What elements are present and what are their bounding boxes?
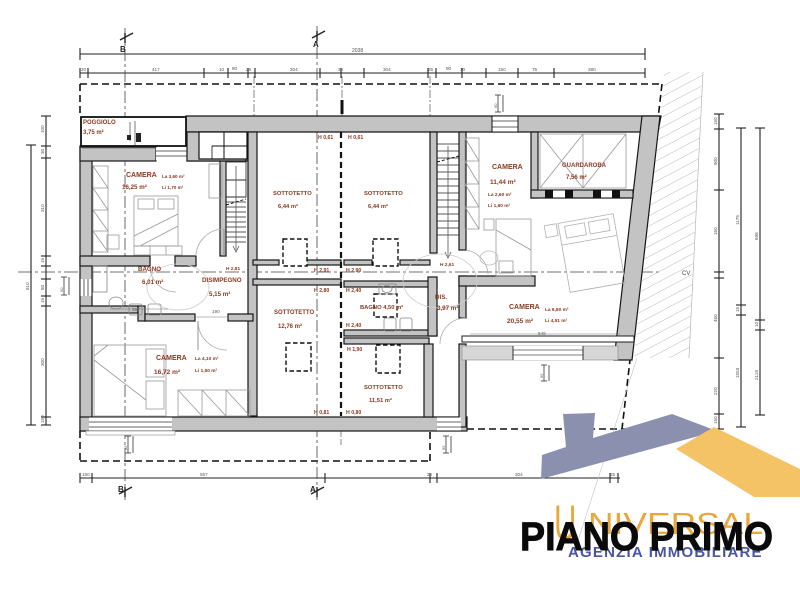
svg-text:549: 549 — [538, 331, 546, 336]
svg-text:H 2,40: H 2,40 — [346, 288, 361, 294]
svg-text:150: 150 — [498, 67, 506, 72]
svg-text:25: 25 — [610, 472, 616, 477]
svg-text:300: 300 — [40, 358, 45, 366]
svg-text:Li 4,51 m²: Li 4,51 m² — [545, 318, 568, 324]
svg-text:SOTTOTETTO: SOTTOTETTO — [274, 310, 314, 316]
svg-text:1553: 1553 — [735, 367, 740, 378]
svg-text:La 6,80 m²: La 6,80 m² — [545, 307, 569, 313]
svg-text:304: 304 — [290, 67, 298, 72]
svg-text:H 2,81: H 2,81 — [226, 266, 240, 272]
svg-text:95: 95 — [123, 445, 128, 450]
svg-text:90: 90 — [59, 287, 64, 292]
svg-text:H 2,40: H 2,40 — [346, 323, 361, 329]
svg-text:10: 10 — [219, 67, 225, 72]
svg-text:25: 25 — [427, 472, 433, 477]
svg-text:SOTTOTETTO: SOTTOTETTO — [364, 191, 403, 197]
svg-text:357: 357 — [132, 307, 140, 312]
svg-text:220: 220 — [713, 387, 718, 395]
svg-text:11,44 m²: 11,44 m² — [490, 179, 516, 186]
svg-text:6,44 m²: 6,44 m² — [368, 203, 388, 210]
svg-text:B: B — [120, 45, 126, 54]
svg-text:H 2,80: H 2,80 — [314, 288, 329, 294]
svg-text:La 4,10 m²: La 4,10 m² — [195, 356, 219, 362]
svg-text:417: 417 — [152, 67, 160, 72]
svg-text:CAMERA: CAMERA — [126, 172, 157, 179]
svg-text:7,56 m²: 7,56 m² — [566, 174, 587, 181]
svg-text:6,44 m²: 6,44 m² — [278, 203, 298, 210]
svg-text:DISIMPEGNO: DISIMPEGNO — [202, 277, 242, 284]
svg-text:H 2,61: H 2,61 — [440, 262, 454, 268]
svg-text:90: 90 — [493, 103, 498, 108]
svg-text:A: A — [310, 485, 316, 494]
svg-text:10: 10 — [754, 321, 759, 327]
svg-text:150: 150 — [713, 227, 718, 235]
svg-text:H 0,61: H 0,61 — [348, 135, 363, 141]
svg-text:190: 190 — [212, 309, 220, 314]
svg-text:BAGNO: BAGNO — [138, 266, 161, 273]
svg-text:15: 15 — [40, 257, 45, 263]
svg-text:BAGNO 4,50 m²: BAGNO 4,50 m² — [360, 304, 403, 311]
svg-text:95: 95 — [441, 445, 446, 450]
svg-text:5,15 m²: 5,15 m² — [209, 291, 230, 298]
svg-text:H 0,61: H 0,61 — [318, 135, 333, 141]
svg-text:SOTTOTETTO: SOTTOTETTO — [273, 191, 312, 197]
svg-text:25: 25 — [338, 67, 344, 72]
svg-text:10: 10 — [460, 67, 466, 72]
svg-text:900: 900 — [713, 157, 718, 165]
svg-text:80: 80 — [232, 66, 238, 71]
svg-text:La 2,60 m²: La 2,60 m² — [488, 192, 512, 198]
svg-text:95: 95 — [539, 373, 544, 378]
svg-text:CAMERA: CAMERA — [156, 355, 187, 362]
svg-text:2038: 2038 — [352, 48, 363, 54]
svg-text:16,25 m²: 16,25 m² — [122, 184, 147, 191]
svg-text:380: 380 — [588, 67, 596, 72]
svg-text:H 0,80: H 0,80 — [346, 410, 361, 416]
svg-text:15: 15 — [735, 306, 740, 312]
svg-text:H 1,90: H 1,90 — [347, 347, 362, 353]
svg-text:150: 150 — [713, 416, 718, 424]
svg-text:460: 460 — [713, 314, 718, 322]
svg-text:150: 150 — [40, 415, 45, 423]
svg-text:Li 1,60 m²: Li 1,60 m² — [488, 203, 511, 209]
svg-text:557: 557 — [200, 472, 208, 477]
svg-text:20: 20 — [81, 67, 87, 72]
svg-text:150: 150 — [82, 472, 90, 477]
svg-text:150: 150 — [713, 117, 718, 125]
svg-text:CAMERA: CAMERA — [492, 164, 523, 171]
svg-text:16,72 m²: 16,72 m² — [154, 369, 181, 376]
svg-text:698: 698 — [754, 232, 759, 240]
svg-text:1175: 1175 — [735, 215, 740, 225]
svg-text:H 2,90: H 2,90 — [346, 268, 361, 274]
svg-text:310: 310 — [40, 204, 45, 212]
svg-text:H 0,81: H 0,81 — [314, 410, 329, 416]
svg-text:304: 304 — [383, 67, 391, 72]
svg-text:A: A — [313, 40, 319, 49]
svg-text:15: 15 — [40, 297, 45, 303]
svg-text:Li 1,50 m²: Li 1,50 m² — [195, 368, 218, 374]
svg-text:304: 304 — [515, 472, 523, 477]
svg-text:GUARDAROBA: GUARDAROBA — [562, 163, 607, 169]
svg-text:80: 80 — [40, 284, 45, 290]
svg-text:SOTTOTETTO: SOTTOTETTO — [364, 385, 403, 391]
svg-text:20,55 m²: 20,55 m² — [507, 318, 534, 325]
svg-text:90: 90 — [446, 66, 452, 71]
svg-text:POGGIOLO: POGGIOLO — [83, 120, 116, 126]
svg-text:Li 1,70 m²: Li 1,70 m² — [162, 185, 184, 190]
svg-text:11,51 m²: 11,51 m² — [369, 397, 392, 404]
svg-text:100: 100 — [40, 125, 45, 133]
svg-text:H 2,91: H 2,91 — [314, 268, 329, 274]
svg-text:75: 75 — [532, 67, 538, 72]
svg-text:La 3,60 m²: La 3,60 m² — [162, 174, 185, 179]
svg-text:B: B — [118, 485, 124, 494]
svg-text:25: 25 — [428, 67, 434, 72]
svg-text:12,76 m²: 12,76 m² — [278, 323, 302, 330]
svg-text:810: 810 — [25, 282, 30, 290]
svg-text:CAMERA: CAMERA — [509, 304, 540, 311]
svg-text:PIANO PRIMO: PIANO PRIMO — [520, 515, 773, 559]
svg-text:3,75 m²: 3,75 m² — [83, 129, 104, 136]
svg-text:2119: 2119 — [754, 370, 759, 380]
svg-text:DIS.: DIS. — [435, 294, 447, 301]
svg-text:3,97 m²: 3,97 m² — [437, 305, 458, 312]
svg-text:6,01 m²: 6,01 m² — [142, 279, 163, 286]
svg-text:30: 30 — [40, 148, 45, 154]
svg-text:25: 25 — [246, 67, 252, 72]
